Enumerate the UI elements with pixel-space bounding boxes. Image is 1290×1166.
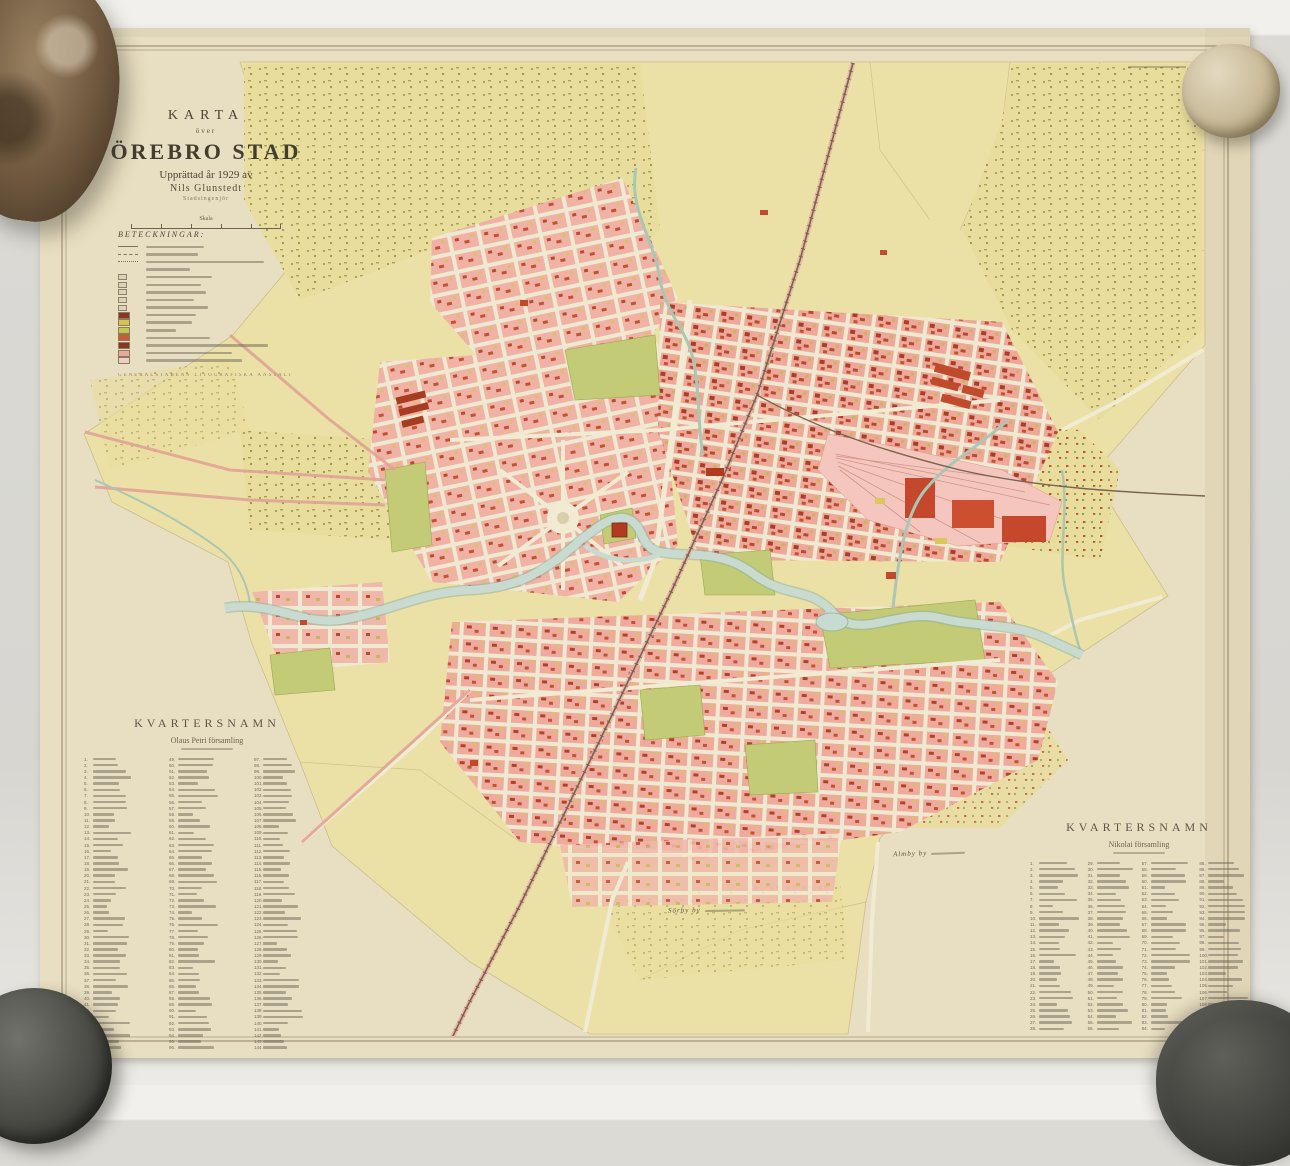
list-entry-name-illegible [1208,893,1237,896]
list-entry-number: 86. [1199,867,1208,872]
list-entry-number: 44. [1088,953,1097,958]
list-entry-number: 74. [1142,965,1151,970]
photo-of-map: { "title_block": { "karta": "KARTA", "ov… [0,0,1290,1085]
list-entry-number: 40. [1088,928,1097,933]
list-entry-number: 37. [1088,910,1097,915]
list-entry-number: 115. [254,867,263,872]
list-entry-name-illegible [1039,1009,1068,1012]
list-entry-number: 105. [1199,983,1208,988]
list-entry-number: 80. [169,947,178,952]
list-entry-number: 4. [84,775,93,780]
list-entry-number: 15. [1030,947,1039,952]
list-entry-name-illegible [93,942,127,945]
list-entry-number: 98. [254,763,263,768]
list-entry-number: 50. [169,763,178,768]
list-entry-number: 54. [1088,1014,1097,1019]
list-entry-name-illegible [93,960,120,963]
list-entry-number: 23. [1030,996,1039,1001]
map-title-karta: KARTA [100,108,312,124]
list-entry-name-illegible [93,979,116,982]
list-entry-number: 90. [169,1008,178,1013]
list-entry-name-illegible [93,819,115,822]
list-entry-number: 50. [1088,990,1097,995]
list-entry-name-illegible [1151,991,1175,994]
list-entry-number: 35. [84,965,93,970]
list-entry-name-illegible [1151,954,1190,957]
legend-row [118,334,358,342]
list-entry-name-illegible [1151,1003,1167,1006]
list-entry-number: 14. [84,836,93,841]
list-entry-number: 15. [84,843,93,848]
list-entry-number: 140. [254,1021,263,1026]
printer-imprint: GENERALSTABENS LITOGRAFISKA ANSTALT [118,373,358,378]
list-entry-name-illegible [1039,911,1063,914]
list-entry-number: 126. [254,935,263,940]
list-entry-name-illegible [178,1040,201,1043]
list-entry-number: 90. [1199,891,1208,896]
list-entry-name-illegible [178,801,202,804]
list-entry-number: 32. [84,947,93,952]
list-entry-name-illegible [178,954,199,957]
list-entry-name-illegible [263,985,299,988]
list-entry-number: 32. [1088,879,1097,884]
list-entry-number: 96. [169,1045,178,1050]
list-entry-name-illegible [93,997,120,1000]
list-entry-number: 121. [254,904,263,909]
list-entry-name-illegible [1151,929,1187,932]
locality-label-sorby: Sörby by [668,905,745,914]
legend-row [118,243,358,251]
list-entry-number: 3. [84,769,93,774]
list-entry-number: 54. [169,787,178,792]
list-entry-name-illegible [93,924,123,927]
list-entry-name-illegible [263,967,286,970]
list-entry-number: 51. [1088,996,1097,1001]
list-entry-name-illegible [1039,880,1063,883]
list-entry-name-illegible [93,856,118,859]
list-entry-name-illegible [263,1040,284,1043]
list-entry-number: 30. [84,935,93,940]
list-entry-name-illegible [263,954,291,957]
list-entry-name-illegible [178,960,215,963]
list-entry-name-illegible [263,942,277,945]
legend-row [118,311,358,319]
list-entry-name-illegible [1151,1009,1166,1012]
list-entry-number: 85. [169,978,178,983]
list-entry-name-illegible [1039,942,1059,945]
list-entry-name-illegible [178,844,214,847]
list-entry-name-illegible [1208,960,1243,963]
list-entry-name-illegible [263,874,289,877]
list-entry-name-illegible [178,917,202,920]
list-entry-number: 30. [1088,867,1097,872]
list-entry-name-illegible [263,905,298,908]
list-entry-name-illegible [1151,942,1180,945]
list-entry-name-illegible [1151,911,1174,914]
list-entry-name-illegible [93,795,126,798]
list-entry-number: 100. [254,775,263,780]
list-entry-number: 68. [169,873,178,878]
list-entry-number: 17. [1030,959,1039,964]
list-entry-number: 6. [1030,891,1039,896]
list-entry-number: 58. [1142,867,1151,872]
list-entry-name-illegible [93,874,115,877]
list-entry-name-illegible [178,825,210,828]
list-entry: 144. [254,1045,330,1051]
list-entry-name-illegible [1208,880,1224,883]
list-entry-number: 138. [254,1008,263,1013]
list-entry-name-illegible [178,979,200,982]
list-entry-name-illegible [263,795,292,798]
list-entry-name-illegible [1039,886,1058,889]
list-entry-number: 83. [169,965,178,970]
legend-symbol [118,246,140,247]
list-entry-name-illegible [1039,917,1079,920]
list-entry-number: 6. [84,787,93,792]
list-entry-number: 52. [169,775,178,780]
list-entry-number: 113. [254,855,263,860]
list-entry-name-illegible [1151,960,1191,963]
list-entry-number: 27. [84,916,93,921]
legend-symbol [118,319,140,326]
legend-row [118,296,358,304]
list-entry-number: 91. [169,1014,178,1019]
list-entry-name-illegible [1039,1015,1070,1018]
list-entry-name-illegible [263,887,289,890]
list-entry-number: 2. [1030,867,1039,872]
list-entry-number: 33. [1088,885,1097,890]
list-left-title: KVARTERSNAMN [84,716,330,731]
list-entry-name-illegible [178,1046,214,1049]
list-entry-number: 127. [254,941,263,946]
list-entry-name-illegible [1151,972,1167,975]
legend-label-illegible [146,337,210,340]
list-entry-name-illegible [1097,923,1120,926]
list-entry-name-illegible [1151,948,1176,951]
list-entry-number: 22. [84,886,93,891]
list-entry-name-illegible [178,795,218,798]
list-entry-number: 1. [84,757,93,762]
list-entry-number: 46. [1088,965,1097,970]
list-entry-number: 99. [1199,947,1208,952]
list-entry-number: 99. [254,769,263,774]
list-entry-number: 78. [1142,990,1151,995]
list-entry-number: 25. [1030,1008,1039,1013]
list-entry-name-illegible [1039,905,1053,908]
legend-label-illegible [146,329,176,332]
list-entry-name-illegible [178,1022,209,1025]
list-entry-number: 71. [1142,947,1151,952]
list-entry-name-illegible [1097,899,1121,902]
list-entry-name-illegible [263,789,291,792]
list-entry-number: 109. [254,830,263,835]
list-entry-number: 144. [254,1045,263,1050]
map-title-author: Nils Glunstedt [100,183,312,194]
list-entry-number: 87. [169,990,178,995]
list-entry-name-illegible [1151,978,1169,981]
list-entry-name-illegible [263,850,290,853]
list-entry-number: 64. [169,849,178,854]
list-entry-number: 94. [169,1033,178,1038]
list-entry-name-illegible [1151,1028,1165,1031]
list-entry-name-illegible [1097,1015,1116,1018]
list-entry-name-illegible [1039,893,1065,896]
list-entry-number: 58. [169,812,178,817]
list-entry-name-illegible [1097,868,1133,871]
list-entry-name-illegible [263,1022,288,1025]
list-entry-number: 59. [1142,873,1151,878]
list-entry-name-illegible [1151,868,1176,871]
legend-row [118,251,358,259]
list-entry-name-illegible [1097,905,1125,908]
list-entry-name-illegible [93,758,116,761]
list-entry-number: 67. [1142,922,1151,927]
list-entry-name-illegible [1208,868,1239,871]
list-left-note [181,748,233,750]
list-entry-number: 41. [1088,934,1097,939]
list-entry-name-illegible [93,954,126,957]
list-entry-name-illegible [1151,936,1174,939]
list-entry-name-illegible [1208,917,1245,920]
list-entry-number: 67. [169,867,178,872]
list-entry-name-illegible [178,776,209,779]
list-entry-name-illegible [93,807,127,810]
list-entry-name-illegible [1151,899,1179,902]
list-entry-number: 75. [169,916,178,921]
list-entry-number: 69. [169,879,178,884]
list-entry-number: 104. [1199,977,1208,982]
legend-row [118,273,358,281]
list-entry-number: 60. [1142,879,1151,884]
list-entry-name-illegible [1097,893,1117,896]
list-entry-number: 130. [254,959,263,964]
list-entry-name-illegible [1151,862,1189,865]
list-entry-number: 107. [1199,996,1208,1001]
list-entry-name-illegible [178,862,212,865]
list-entry: 28. [1030,1026,1079,1032]
legend-symbol [118,357,140,364]
list-entry-number: 136. [254,996,263,1001]
scale-label: Skala [100,216,312,222]
list-entry-name-illegible [1039,899,1077,902]
list-entry-name-illegible [1039,923,1059,926]
legend-title: BETECKNINGAR: [118,230,358,239]
kvartersnamn-list-right: KVARTERSNAMN Nikolai församling 1.2.3.4.… [1030,820,1248,1032]
list-entry-number: 78. [169,935,178,940]
legend-row [118,342,358,350]
list-entry-number: 53. [169,781,178,786]
list-entry-name-illegible [1208,942,1239,945]
list-entry-name-illegible [178,893,197,896]
list-entry-number: 18. [84,861,93,866]
list-entry-name-illegible [1039,868,1075,871]
list-entry-number: 59. [169,818,178,823]
list-entry-name-illegible [263,825,279,828]
list-entry-name-illegible [1151,874,1185,877]
list-entry-number: 11. [1030,922,1039,927]
legend-symbol [118,327,140,334]
list-entry-name-illegible [178,985,196,988]
list-entry-number: 103. [1199,971,1208,976]
list-entry-number: 36. [84,971,93,976]
list-entry-number: 128. [254,947,263,952]
list-entry-name-illegible [263,1028,279,1031]
list-entry-number: 95. [169,1039,178,1044]
title-block: KARTA över ÖREBRO STAD Upprättad år 1929… [100,108,312,229]
list-entry-number: 135. [254,990,263,995]
list-entry-number: 55. [169,793,178,798]
list-entry-number: 88. [1199,879,1208,884]
list-entry-number: 48. [1088,977,1097,982]
list-entry-name-illegible [263,1010,302,1013]
list-entry-name-illegible [93,813,114,816]
legend-label-illegible [146,268,190,271]
map-title-year: Upprättad år 1929 av [100,169,312,181]
list-right-note [1113,852,1165,854]
list-entry-number: 13. [84,830,93,835]
list-entry-number: 8. [84,800,93,805]
legend-symbol [118,334,140,341]
legend-label-illegible [146,261,264,264]
list-entry-name-illegible [93,973,127,976]
list-entry-number: 124. [254,922,263,927]
list-entry-name-illegible [1097,966,1124,969]
list-entry-name-illegible [1097,1009,1129,1012]
list-entry-name-illegible [263,924,288,927]
list-entry-name-illegible [1208,991,1227,994]
list-entry-number: 14. [1030,940,1039,945]
kvartersnamn-list-left: KVARTERSNAMN Olaus Petri församling 1.2.… [84,716,330,1051]
list-entry-number: 24. [1030,1002,1039,1007]
list-entry-name-illegible [178,997,210,1000]
list-entry-number: 122. [254,910,263,915]
legend-row [118,349,358,357]
list-column: 97.98.99.100.101.102.103.104.105.106.107… [254,756,330,1051]
list-entry-name-illegible [178,973,199,976]
list-entry-number: 79. [1142,996,1151,1001]
list-entry-number: 35. [1088,897,1097,902]
list-entry-number: 1. [1030,861,1039,866]
list-entry-number: 16. [84,849,93,854]
list-column: 57.58.59.60.61.62.63.64.65.66.67.68.69.7… [1142,860,1191,1032]
list-entry-name-illegible [263,801,289,804]
list-entry-name-illegible [178,813,193,816]
list-entry-name-illegible [263,862,290,865]
list-entry-number: 142. [254,1033,263,1038]
list-entry-number: 86. [169,984,178,989]
list-entry-number: 33. [84,953,93,958]
list-entry-name-illegible [263,899,282,902]
list-entry-number: 116. [254,873,263,878]
list-entry-name-illegible [178,905,216,908]
legend-label-illegible [146,284,201,287]
list-entry-number: 89. [1199,885,1208,890]
legend-symbol [118,297,140,303]
list-entry-number: 9. [1030,910,1039,915]
list-entry-name-illegible [1039,874,1078,877]
list-entry-name-illegible [263,807,286,810]
list-entry-name-illegible [1097,1021,1132,1024]
list-entry-number: 12. [84,824,93,829]
list-entry-name-illegible [178,1010,196,1013]
list-column: 1.2.3.4.5.6.7.8.9.10.11.12.13.14.15.16.1… [1030,860,1079,1032]
list-entry-name-illegible [1151,997,1183,1000]
list-entry-number: 104. [254,800,263,805]
list-entry-name-illegible [178,850,212,853]
list-entry-name-illegible [93,844,123,847]
list-right-subtitle: Nikolai församling [1030,840,1248,849]
legend-row [118,327,358,335]
list-entry-number: 93. [169,1027,178,1032]
list-entry-name-illegible [178,807,206,810]
list-entry-name-illegible [1208,966,1237,969]
list-entry-name-illegible [93,948,118,951]
list-entry-number: 10. [1030,916,1039,921]
list-entry-number: 134. [254,984,263,989]
list-entry-name-illegible [1097,991,1123,994]
list-entry-number: 36. [1088,904,1097,909]
list-entry-name-illegible [1097,997,1118,1000]
list-entry-name-illegible [178,770,207,773]
list-entry-number: 92. [169,1021,178,1026]
list-entry-number: 108. [254,824,263,829]
list-entry-number: 11. [84,818,93,823]
list-entry-number: 26. [84,910,93,915]
list-entry-number: 27. [1030,1020,1039,1025]
list-entry-number: 79. [169,941,178,946]
list-entry-name-illegible [93,764,118,767]
list-entry-number: 8. [1030,904,1039,909]
list-entry-name-illegible [1097,1003,1123,1006]
list-entry-name-illegible [1039,1003,1057,1006]
list-entry-number: 70. [1142,940,1151,945]
list-entry-name-illegible [1039,1028,1064,1031]
list-entry-number: 73. [1142,959,1151,964]
list-entry-number: 107. [254,818,263,823]
list-entry-name-illegible [1151,886,1165,889]
list-entry-number: 65. [169,855,178,860]
list-entry-number: 40. [84,996,93,1001]
list-entry-name-illegible [93,936,129,939]
list-entry-number: 141. [254,1027,263,1032]
list-entry-number: 101. [254,781,263,786]
list-entry-name-illegible [178,967,193,970]
list-entry-number: 60. [169,824,178,829]
list-entry-number: 72. [169,898,178,903]
list-entry-name-illegible [1039,991,1071,994]
legend-symbol [118,254,140,255]
list-entry-number: 143. [254,1039,263,1044]
list-entry-number: 61. [1142,885,1151,890]
list-entry-number: 42. [1088,940,1097,945]
list-entry-name-illegible [93,838,118,841]
legend-label-illegible [146,359,242,362]
list-entry-number: 91. [1199,897,1208,902]
list-entry-name-illegible [263,832,288,835]
list-entry-name-illegible [1208,899,1243,902]
list-entry-name-illegible [263,782,287,785]
list-entry-name-illegible [1039,929,1069,932]
list-entry-name-illegible [1151,905,1166,908]
list-entry-number: 75. [1142,971,1151,976]
list-entry-name-illegible [1097,978,1124,981]
list-entry-number: 103. [254,793,263,798]
list-entry-name-illegible [93,770,126,773]
list-entry-name-illegible [1039,960,1054,963]
list-entry-name-illegible [263,1003,288,1006]
legend-row [118,357,358,365]
list-entry-number: 38. [1088,916,1097,921]
